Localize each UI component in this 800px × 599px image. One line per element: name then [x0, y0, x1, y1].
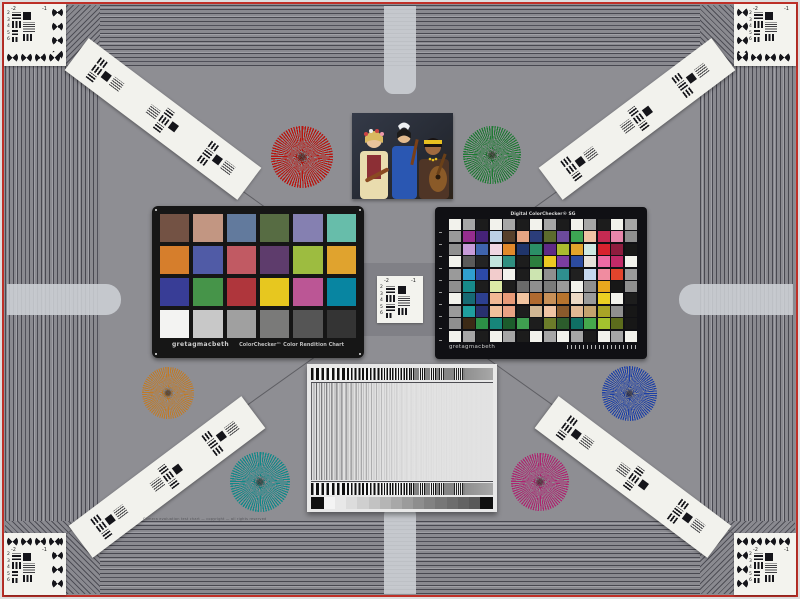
usaf-bars-icon — [754, 578, 760, 583]
sg-color-patch — [611, 331, 623, 342]
sg-color-patch — [598, 318, 610, 329]
sg-color-patch — [544, 219, 556, 230]
sg-color-patch — [544, 331, 556, 342]
test-chart-photo: -2-1 23456 -2-1 23456 — [0, 0, 800, 599]
chirp-bar-top — [311, 368, 493, 380]
registration-dot — [155, 353, 157, 355]
usaf-label: -1 — [411, 279, 416, 284]
sg-color-patch — [476, 293, 488, 304]
sg-color-patch — [463, 293, 475, 304]
registration-square-icon — [23, 12, 31, 20]
registration-square-icon — [765, 12, 773, 20]
sg-color-patch — [476, 231, 488, 242]
center-resolution-target: -2 -1 23456 — [377, 276, 423, 323]
alignment-tab-right — [679, 284, 793, 315]
sg-color-patch — [503, 318, 515, 329]
grayscale-step-wedge — [311, 497, 493, 509]
gray-step — [380, 497, 391, 509]
color-patch — [327, 246, 356, 274]
sg-color-patch — [544, 244, 556, 255]
fan-icon — [737, 52, 748, 63]
fan-icon — [765, 52, 776, 63]
colorchecker-24-chart: gretagmacbeth ColorChecker™ Color Rendit… — [152, 206, 364, 358]
usaf-bars-icon — [754, 12, 763, 19]
fan-registration-row — [737, 52, 790, 63]
sg-color-patch — [625, 331, 637, 342]
registration-dot — [155, 209, 157, 211]
usaf-bars-icon — [12, 553, 21, 560]
gray-step — [413, 497, 424, 509]
color-patch — [260, 246, 289, 274]
siemens-star-green — [463, 126, 521, 184]
fan-icon — [21, 52, 32, 63]
sg-color-patch — [490, 244, 502, 255]
wedge-end-black — [311, 497, 324, 509]
sg-color-patch — [476, 256, 488, 267]
sg-color-patch — [584, 219, 596, 230]
usaf-bars-icon — [386, 313, 392, 318]
usaf-label: -1 — [784, 548, 789, 553]
sg-color-patch — [584, 244, 596, 255]
musicians-photo — [352, 113, 453, 199]
sg-color-patch — [598, 306, 610, 317]
sg-color-patch — [557, 244, 569, 255]
fan-icon — [35, 52, 46, 63]
micro-text-block — [398, 296, 410, 306]
fan-icon — [751, 52, 762, 63]
sg-color-patch — [490, 219, 502, 230]
sg-color-patch — [517, 231, 529, 242]
color-patch — [260, 278, 289, 306]
sg-color-patch — [625, 306, 637, 317]
sg-color-patch — [517, 219, 529, 230]
fan-icon — [737, 536, 748, 547]
registration-dot — [359, 209, 361, 211]
sg-title: Digital ColorChecker® SG — [449, 210, 637, 219]
sg-color-patch — [449, 269, 461, 280]
micro-text-block — [23, 22, 35, 32]
usaf-label: -1 — [784, 7, 789, 12]
sg-color-patch — [544, 281, 556, 292]
sg-color-patch — [476, 269, 488, 280]
sg-color-patch — [557, 331, 569, 342]
fan-registration-row — [7, 52, 60, 63]
usaf-bars-icon — [23, 34, 32, 41]
sg-color-patch — [584, 306, 596, 317]
sg-color-patch — [530, 231, 542, 242]
usaf-group-number: 2 — [749, 12, 752, 17]
sg-color-patch — [463, 231, 475, 242]
usaf-bars-icon — [754, 562, 763, 569]
copyright-fine-print: Camera evaluation test chart — copyright… — [143, 517, 266, 521]
fan-icon — [52, 578, 63, 589]
sg-color-patch — [571, 318, 583, 329]
sg-color-patch — [463, 281, 475, 292]
color-patch — [327, 214, 356, 242]
sg-color-patch — [598, 219, 610, 230]
color-patch — [160, 278, 189, 306]
sg-color-patch — [449, 219, 461, 230]
sg-color-patch — [598, 293, 610, 304]
fan-icon — [737, 550, 748, 561]
usaf-group-number: 6 — [380, 312, 383, 317]
sg-color-patch — [530, 331, 542, 342]
sg-color-patch — [503, 331, 515, 342]
color-patch — [193, 278, 222, 306]
sg-row-ticks — [439, 223, 442, 341]
usaf-number-column: 23456 — [7, 12, 10, 43]
sg-color-patch — [584, 293, 596, 304]
wedge-end-black — [480, 497, 493, 509]
usaf-bars-icon — [386, 304, 395, 311]
sg-color-patch — [490, 269, 502, 280]
sg-color-patch — [517, 269, 529, 280]
registration-square-icon — [398, 286, 406, 294]
usaf-bars-icon — [765, 575, 774, 582]
sg-color-patch — [530, 256, 542, 267]
sg-color-patch — [503, 306, 515, 317]
sg-color-patch — [503, 293, 515, 304]
usaf-number-column: 23456 — [749, 12, 752, 43]
usaf-group-number: 3 — [380, 293, 383, 298]
fan-icon — [737, 564, 748, 575]
fan-icon — [49, 536, 60, 547]
sg-color-patch — [503, 281, 515, 292]
usaf-group-number: 5 — [749, 32, 752, 37]
color-patch — [293, 310, 322, 338]
sg-color-patch — [557, 306, 569, 317]
sg-color-patch — [530, 281, 542, 292]
sg-color-patch — [544, 293, 556, 304]
sg-color-patch — [571, 281, 583, 292]
sg-color-patch — [490, 293, 502, 304]
sg-color-patch — [598, 269, 610, 280]
usaf-group-number: 4 — [7, 566, 10, 571]
sg-color-patch — [571, 306, 583, 317]
sg-color-patch — [598, 256, 610, 267]
usaf-group-number: 4 — [749, 25, 752, 30]
color-patch — [227, 246, 256, 274]
wedge-steps — [324, 497, 480, 509]
siemens-star-magenta — [511, 453, 569, 511]
sg-color-patch — [571, 244, 583, 255]
sg-color-patch — [476, 244, 488, 255]
sg-color-patch — [584, 281, 596, 292]
fan-icon — [751, 536, 762, 547]
sg-color-patch — [476, 281, 488, 292]
sg-color-patch — [571, 219, 583, 230]
sg-color-patch — [463, 219, 475, 230]
fan-icon — [7, 536, 18, 547]
corner-resolution-target-br: -2-1 23456 — [734, 533, 796, 595]
fan-icon — [21, 536, 32, 547]
sg-color-patch — [449, 331, 461, 342]
sg-color-patch — [571, 331, 583, 342]
usaf-group-number: 4 — [380, 299, 383, 304]
usaf-group-number: 5 — [749, 573, 752, 578]
color-patch — [260, 214, 289, 242]
sg-color-patch — [611, 306, 623, 317]
sg-color-patch — [544, 306, 556, 317]
colorchecker-grid — [160, 214, 356, 338]
corner-resolution-target-tr: -2-1 23456 — [734, 4, 796, 66]
alignment-tab-left — [7, 284, 121, 315]
gray-step — [402, 497, 413, 509]
sg-color-patch — [503, 219, 515, 230]
sg-brand: gretagmacbeth — [449, 344, 495, 350]
sg-color-patch — [598, 331, 610, 342]
usaf-bars-icon — [754, 30, 760, 35]
fan-icon — [779, 536, 790, 547]
usaf-group-number: 6 — [749, 579, 752, 584]
sg-color-patch — [449, 318, 461, 329]
siemens-star-teal — [230, 452, 290, 512]
sg-color-patch — [490, 256, 502, 267]
color-patch — [327, 278, 356, 306]
sg-color-patch — [544, 231, 556, 242]
gray-step — [357, 497, 368, 509]
gray-step — [324, 497, 335, 509]
sg-color-patch — [571, 269, 583, 280]
usaf-number-column: 23456 — [380, 286, 383, 318]
gray-step — [391, 497, 402, 509]
chirp-bar-bottom — [311, 483, 493, 495]
usaf-bars-icon — [12, 571, 18, 576]
usaf-group-number: 2 — [749, 553, 752, 558]
usaf-bars-icon — [12, 12, 21, 19]
color-patch — [293, 214, 322, 242]
color-patch — [160, 214, 189, 242]
gray-step — [346, 497, 357, 509]
alignment-tab-top — [384, 6, 416, 94]
sg-color-patch — [598, 244, 610, 255]
sg-color-patch — [449, 244, 461, 255]
sg-color-patch — [571, 256, 583, 267]
colorchecker-brand: gretagmacbeth — [172, 341, 229, 348]
sg-color-patch — [490, 281, 502, 292]
usaf-group-number: 3 — [7, 560, 10, 565]
sg-color-patch — [490, 318, 502, 329]
usaf-bars-icon — [386, 286, 395, 293]
usaf-bars-icon — [12, 562, 21, 569]
fan-icon — [52, 550, 63, 561]
usaf-group-number: 4 — [749, 566, 752, 571]
sweep-fade-field — [311, 383, 493, 480]
usaf-bars-icon — [12, 578, 18, 583]
sg-color-patch — [517, 256, 529, 267]
usaf-bars-icon — [754, 553, 763, 560]
sg-color-patch — [503, 256, 515, 267]
sg-color-patch — [611, 293, 623, 304]
usaf-number-column: 23456 — [7, 553, 10, 584]
sg-color-patch — [476, 318, 488, 329]
usaf-bars-icon — [765, 34, 774, 41]
sg-color-patch — [517, 331, 529, 342]
usaf-group-number: 5 — [7, 32, 10, 37]
sg-color-patch — [463, 331, 475, 342]
micro-text-block — [765, 563, 777, 573]
sg-color-patch — [584, 331, 596, 342]
sg-color-patch — [530, 306, 542, 317]
sg-color-patch — [557, 256, 569, 267]
sg-color-patch — [557, 293, 569, 304]
usaf-label: -2 — [384, 279, 389, 284]
sg-color-patch — [517, 318, 529, 329]
micro-text-block — [765, 22, 777, 32]
sg-color-patch — [503, 244, 515, 255]
fan-icon — [52, 564, 63, 575]
sg-color-patch — [503, 231, 515, 242]
fan-icon — [737, 21, 748, 32]
sg-color-patch — [584, 318, 596, 329]
usaf-group-number: 5 — [380, 306, 383, 311]
sg-color-patch — [449, 256, 461, 267]
fan-registration-row — [7, 536, 60, 547]
siemens-star-orange — [142, 367, 194, 419]
fan-icon — [52, 7, 63, 18]
usaf-group-number: 6 — [7, 38, 10, 43]
usaf-bars-icon — [12, 30, 18, 35]
gray-step — [369, 497, 380, 509]
sg-color-patch — [598, 281, 610, 292]
usaf-group-number: 5 — [7, 573, 10, 578]
color-patch — [260, 310, 289, 338]
gray-step — [435, 497, 446, 509]
sg-color-patch — [611, 281, 623, 292]
fan-icon — [52, 21, 63, 32]
sg-color-patch — [463, 306, 475, 317]
usaf-number-column: 23456 — [749, 553, 752, 584]
sg-color-patch — [625, 256, 637, 267]
sg-color-patch — [611, 318, 623, 329]
sg-grid — [449, 219, 637, 342]
sg-color-patch — [625, 231, 637, 242]
gray-step — [469, 497, 480, 509]
color-patch — [227, 310, 256, 338]
usaf-group-number: 2 — [380, 286, 383, 291]
color-patch — [293, 246, 322, 274]
sg-color-patch — [611, 256, 623, 267]
sg-color-patch — [530, 269, 542, 280]
siemens-star-blue — [602, 366, 657, 421]
sg-color-patch — [598, 231, 610, 242]
usaf-bars-icon — [398, 308, 407, 315]
usaf-bars-icon — [754, 37, 760, 42]
color-patch — [193, 246, 222, 274]
usaf-group-number: 6 — [7, 579, 10, 584]
sg-color-patch — [530, 293, 542, 304]
usaf-group-number: 4 — [7, 25, 10, 30]
usaf-group-number: 2 — [7, 553, 10, 558]
gray-step — [424, 497, 435, 509]
color-patch — [160, 310, 189, 338]
frequency-sweep-panel — [307, 364, 497, 512]
usaf-bars-icon — [754, 571, 760, 576]
sg-color-patch — [625, 244, 637, 255]
fan-icon — [35, 536, 46, 547]
sg-color-patch — [625, 269, 637, 280]
colorchecker-title: ColorChecker™ Color Rendition Chart — [239, 342, 344, 348]
fan-icon — [779, 52, 790, 63]
sg-color-patch — [625, 281, 637, 292]
sg-color-patch — [544, 318, 556, 329]
fan-icon — [49, 52, 60, 63]
fan-icon — [737, 7, 748, 18]
sg-color-patch — [571, 231, 583, 242]
colorchecker-sg-chart: Digital ColorChecker® SG gretagmacbeth — [435, 207, 647, 359]
sg-color-patch — [557, 219, 569, 230]
sg-color-patch — [584, 256, 596, 267]
rule-line — [311, 481, 493, 482]
sg-color-patch — [557, 231, 569, 242]
sg-color-patch — [584, 269, 596, 280]
sg-color-patch — [463, 244, 475, 255]
fan-icon — [52, 35, 63, 46]
sg-color-patch — [476, 219, 488, 230]
sg-color-patch — [584, 231, 596, 242]
sg-color-patch — [476, 306, 488, 317]
fan-icon — [737, 35, 748, 46]
sg-color-patch — [625, 293, 637, 304]
sg-color-patch — [476, 331, 488, 342]
usaf-group-number: 3 — [7, 19, 10, 24]
color-patch — [193, 310, 222, 338]
sg-color-patch — [517, 244, 529, 255]
sg-color-patch — [625, 318, 637, 329]
alignment-tab-bottom — [384, 506, 416, 594]
sg-color-patch — [530, 318, 542, 329]
sg-color-patch — [611, 231, 623, 242]
sg-color-patch — [571, 293, 583, 304]
sg-color-patch — [517, 293, 529, 304]
sg-color-patch — [463, 256, 475, 267]
micro-text-block — [23, 563, 35, 573]
sg-color-patch — [611, 219, 623, 230]
fan-icon — [765, 536, 776, 547]
usaf-label: -1 — [42, 548, 47, 553]
usaf-group-number: 6 — [749, 38, 752, 43]
usaf-bars-icon — [12, 21, 21, 28]
sg-color-patch — [557, 269, 569, 280]
color-patch — [193, 214, 222, 242]
sg-color-patch — [463, 269, 475, 280]
sg-color-patch — [490, 331, 502, 342]
usaf-bars-icon — [12, 37, 18, 42]
sg-color-patch — [530, 244, 542, 255]
sg-color-patch — [449, 293, 461, 304]
sg-color-patch — [544, 256, 556, 267]
corner-resolution-target-bl: -2-1 23456 — [4, 533, 66, 595]
sg-color-patch — [557, 281, 569, 292]
color-patch — [293, 278, 322, 306]
sg-color-patch — [544, 269, 556, 280]
sg-color-patch — [463, 318, 475, 329]
fan-icon — [7, 52, 18, 63]
usaf-label: -1 — [42, 7, 47, 12]
sg-color-patch — [490, 306, 502, 317]
sg-ruler-ticks — [567, 345, 637, 349]
corner-resolution-target-tl: -2-1 23456 — [4, 4, 66, 66]
sg-color-patch — [449, 281, 461, 292]
color-patch — [227, 278, 256, 306]
registration-square-icon — [23, 553, 31, 561]
photo-right-headband — [424, 140, 442, 144]
gray-step — [447, 497, 458, 509]
sg-color-patch — [449, 306, 461, 317]
registration-dot — [359, 353, 361, 355]
color-patch — [160, 246, 189, 274]
sg-color-patch — [611, 244, 623, 255]
